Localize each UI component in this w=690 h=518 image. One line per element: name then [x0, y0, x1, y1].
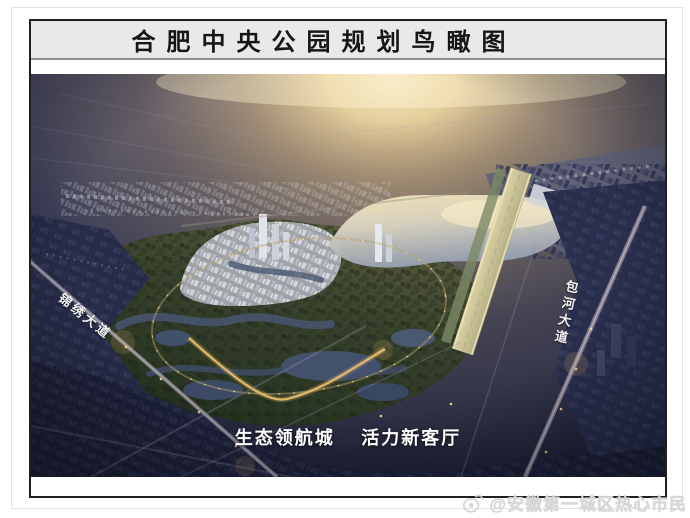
poster-title: 合肥中央公园规划鸟瞰图	[132, 22, 517, 57]
poster-frame: 合肥中央公园规划鸟瞰图	[29, 19, 667, 498]
aerial-rendering: 锦绣大道 包河大道 生态领航城 活力新客厅	[31, 74, 665, 477]
watermark-text: @安徽第一城区热心市民	[489, 490, 687, 515]
weibo-logo-icon	[462, 492, 484, 514]
scene-slogan-caption: 生态领航城 活力新客厅	[31, 424, 665, 450]
weibo-image-post: 合肥中央公园规划鸟瞰图	[0, 0, 690, 518]
poster-title-band: 合肥中央公园规划鸟瞰图	[31, 21, 665, 60]
weibo-watermark: @安徽第一城区热心市民	[462, 490, 687, 515]
aerial-scene-artwork	[31, 74, 665, 477]
